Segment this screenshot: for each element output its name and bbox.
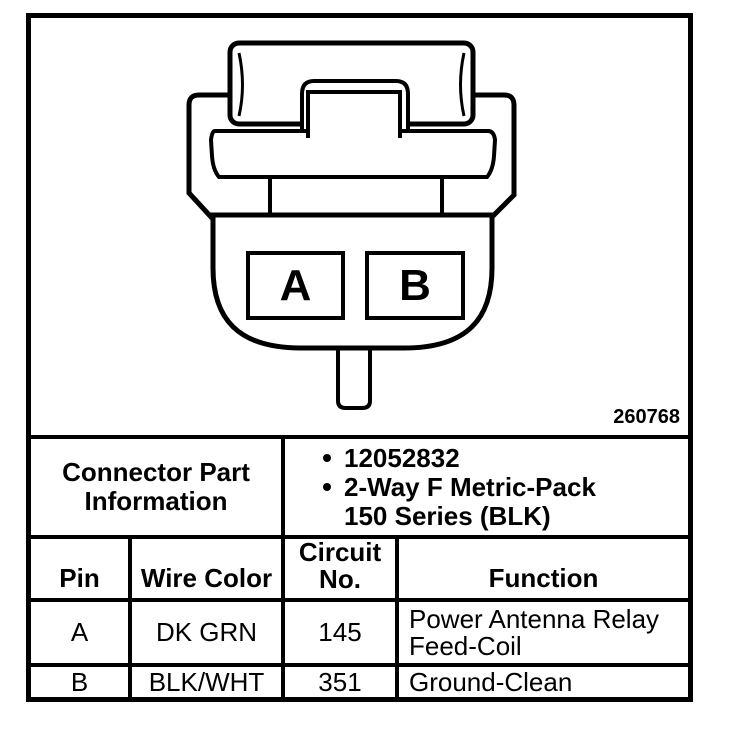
row-b-function: Ground-Clean (399, 667, 688, 697)
row-a-wire-color: DK GRN (132, 602, 281, 663)
figure-number: 260768 (480, 406, 680, 429)
row-a-function: Power Antenna Relay Feed-Coil (399, 602, 688, 663)
pin-b-label: B (367, 253, 463, 318)
center-tab (308, 92, 400, 138)
bullet-icon (323, 454, 331, 462)
row-a-pin: A (31, 602, 128, 663)
header-wire-color: Wire Color (132, 539, 281, 598)
row-a-circuit: 145 (285, 602, 395, 663)
part-number: 12052832 (344, 444, 460, 473)
connector-part-info-title: Connector Part Information (31, 439, 281, 535)
row-b-circuit: 351 (285, 667, 395, 697)
header-circuit-line1: Circuit (299, 539, 381, 566)
header-pin: Pin (31, 539, 128, 598)
pin-a-label: A (248, 253, 343, 318)
connector-type-line2: 150 Series (BLK) (344, 502, 551, 531)
row-b-wire-color: BLK/WHT (132, 667, 281, 697)
part-number-item: 12052832 (323, 444, 460, 473)
bullet-icon (323, 483, 331, 491)
connector-type-item: 2-Way F Metric-Pack (323, 473, 596, 502)
connector-info-page: A B 260768 Connector Part Information 12… (0, 0, 736, 756)
connector-diagram (0, 0, 736, 436)
row-b-pin: B (31, 667, 128, 697)
header-circuit-line2: No. (319, 566, 361, 593)
connector-part-info-line2: Information (85, 487, 228, 516)
connector-type-line1: 2-Way F Metric-Pack (344, 473, 596, 502)
header-function: Function (399, 539, 688, 598)
connector-part-info-details: 12052832 2-Way F Metric-Pack 150 Series … (285, 439, 688, 535)
connector-stem (338, 348, 370, 408)
connector-part-info-line1: Connector Part (62, 458, 250, 487)
header-circuit-no: Circuit No. (285, 539, 395, 598)
